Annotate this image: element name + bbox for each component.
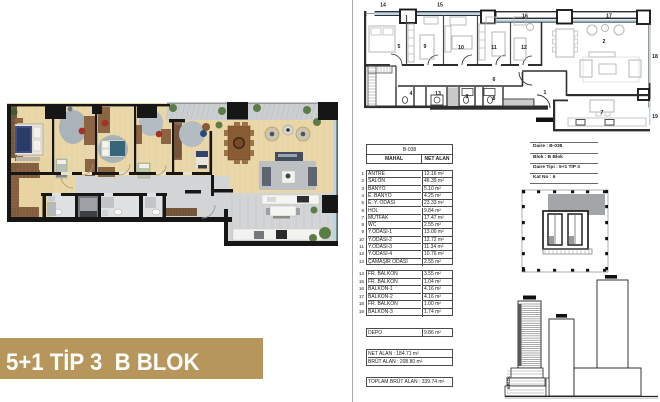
svg-text:6: 6 <box>493 77 496 83</box>
svg-text:17: 17 <box>606 14 612 20</box>
svg-text:16: 16 <box>522 14 528 20</box>
svg-text:9: 9 <box>424 44 427 50</box>
svg-text:15: 15 <box>437 3 443 9</box>
svg-text:18: 18 <box>652 54 658 60</box>
svg-text:2: 2 <box>603 39 606 45</box>
svg-text:14: 14 <box>380 3 386 9</box>
svg-text:11: 11 <box>491 45 497 51</box>
svg-text:12: 12 <box>521 45 527 51</box>
svg-text:B BLOK: B BLOK <box>507 375 511 389</box>
svg-text:10: 10 <box>458 45 464 51</box>
svg-text:1: 1 <box>544 90 547 96</box>
svg-text:5: 5 <box>398 44 401 50</box>
svg-text:19: 19 <box>652 114 658 120</box>
svg-text:7: 7 <box>601 110 604 116</box>
svg-text:3: 3 <box>466 94 469 100</box>
svg-text:13: 13 <box>435 91 441 97</box>
svg-text:4: 4 <box>410 91 413 97</box>
svg-text:8: 8 <box>493 96 496 102</box>
